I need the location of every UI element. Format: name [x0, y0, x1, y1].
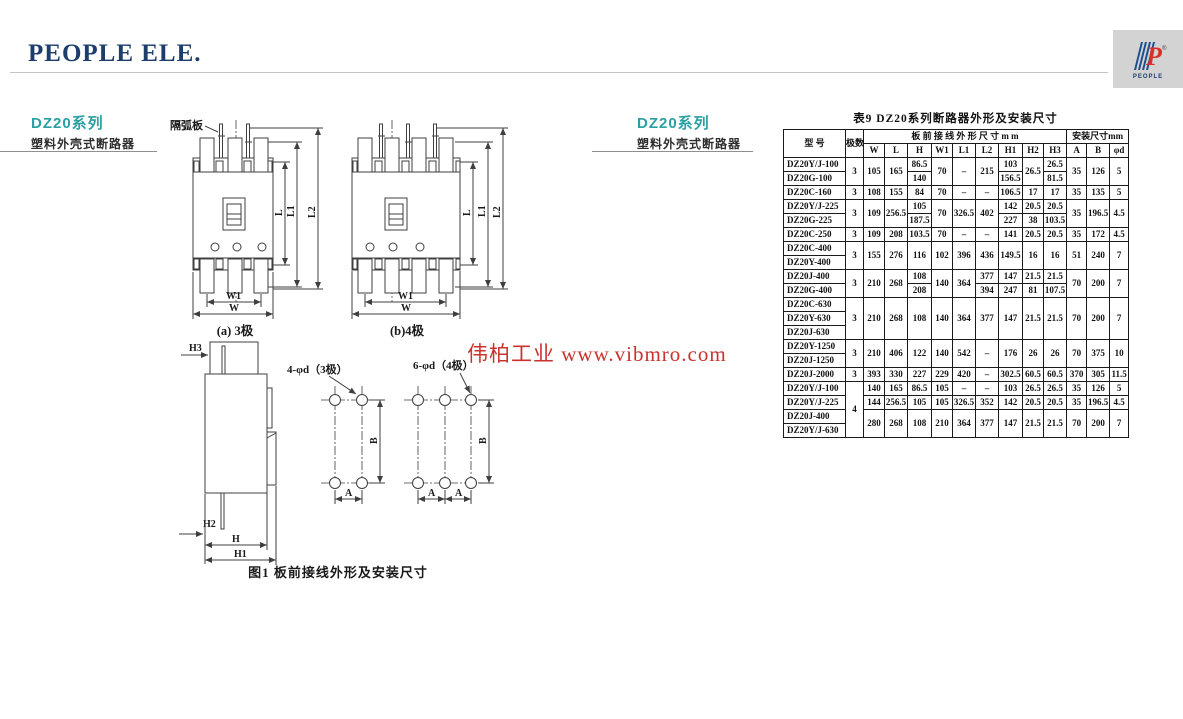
value-cell: 106.5	[999, 186, 1023, 200]
value-cell: 103.5	[1044, 214, 1067, 228]
table-row: DZ20Y/J-2253109256.510570326.540214220.5…	[784, 200, 1129, 214]
value-cell: 108	[908, 298, 932, 340]
value-cell: 10	[1110, 340, 1129, 368]
model-cell: DZ20C-400	[784, 242, 846, 256]
value-cell: 26.5	[1044, 382, 1067, 396]
value-cell: 210	[864, 340, 885, 368]
dimension-table-section: 表9 DZ20系列断路器外形及安装尺寸 型 号 极数 板 前 接 线 外 形 尺…	[783, 110, 1128, 438]
value-cell: –	[953, 228, 976, 242]
value-cell: 26	[1023, 340, 1044, 368]
value-cell: 377	[976, 298, 999, 340]
dim-label-B: B	[369, 437, 380, 444]
mounting-hole	[416, 243, 424, 251]
value-cell: 140	[932, 340, 953, 368]
value-cell: 7	[1110, 298, 1129, 340]
value-cell: 122	[908, 340, 932, 368]
value-cell: 393	[864, 368, 885, 382]
value-cell: 172	[1087, 228, 1110, 242]
model-cell: DZ20G-225	[784, 214, 846, 228]
table-row: DZ20C-630321026810814036437714721.521.57…	[784, 298, 1129, 312]
model-cell: DZ20C-250	[784, 228, 846, 242]
breaker-side-body	[205, 374, 267, 493]
col-header: L2	[976, 144, 999, 158]
value-cell: 302.5	[999, 368, 1023, 382]
value-cell: 17	[1023, 186, 1044, 200]
value-cell: 70	[932, 228, 953, 242]
value-cell: 116	[908, 242, 932, 270]
value-cell: 140	[864, 382, 885, 396]
model-cell: DZ20J-2000	[784, 368, 846, 382]
hole-pattern-4pole-label: 6-φd（4极）	[413, 358, 474, 372]
value-cell: 5	[1110, 382, 1129, 396]
value-cell: 3	[846, 340, 864, 368]
value-cell: 70	[1067, 270, 1087, 298]
col-header: B	[1087, 144, 1110, 158]
value-cell: 126	[1087, 158, 1110, 186]
value-cell: 35	[1067, 158, 1087, 186]
value-cell: 141	[999, 228, 1023, 242]
value-cell: 84	[908, 186, 932, 200]
value-cell: 227	[908, 368, 932, 382]
fixing-hole	[330, 395, 341, 406]
mounting-bracket	[267, 432, 276, 485]
value-cell: 35	[1067, 396, 1087, 410]
value-cell: 215	[976, 158, 999, 186]
mounting-hole-patterns-drawing: 4-φd（3极） B A 6-φd（4极） B	[285, 358, 500, 510]
value-cell: 86.5	[908, 382, 932, 396]
value-cell: 3	[846, 270, 864, 298]
value-cell: 176	[999, 340, 1023, 368]
value-cell: 3	[846, 158, 864, 186]
col-header: W	[864, 144, 885, 158]
value-cell: 105	[932, 396, 953, 410]
col-header: H3	[1044, 144, 1067, 158]
table-header-row-1: 型 号 极数 板 前 接 线 外 形 尺 寸 m m 安装尺寸mm	[784, 130, 1129, 144]
model-cell: DZ20Y/J-225	[784, 396, 846, 410]
dim-label-L2: L2	[492, 206, 503, 218]
dimension-table-body: DZ20Y/J-100310516586.570–21510326.526.53…	[784, 158, 1129, 438]
value-cell: 7	[1110, 242, 1129, 270]
terminal-lug	[228, 138, 242, 172]
value-cell: 165	[885, 382, 908, 396]
value-cell: 105	[932, 382, 953, 396]
brand-logotype: PEOPLE ELE.	[28, 40, 202, 68]
value-cell: –	[976, 228, 999, 242]
value-cell: 102	[932, 242, 953, 270]
dim-label-L: L	[274, 209, 285, 216]
table-row: DZ20J-40028026810821036437714721.521.570…	[784, 410, 1129, 424]
value-cell: 256.5	[885, 200, 908, 228]
value-cell: 108	[864, 186, 885, 200]
table-row: DZ20J-20003393330227229420–302.560.560.5…	[784, 368, 1129, 382]
value-cell: 396	[953, 242, 976, 270]
value-cell: 20.5	[1044, 396, 1067, 410]
value-cell: 147	[999, 410, 1023, 438]
value-cell: 35	[1067, 186, 1087, 200]
value-cell: 21.5	[1023, 298, 1044, 340]
value-cell: 51	[1067, 242, 1087, 270]
value-cell: 268	[885, 410, 908, 438]
value-cell: 109	[864, 228, 885, 242]
value-cell: 147	[999, 270, 1023, 284]
col-header: φd	[1110, 144, 1129, 158]
col-header: H	[908, 144, 932, 158]
value-cell: 86.5	[908, 158, 932, 172]
value-cell: 227	[999, 214, 1023, 228]
value-cell: 247	[999, 284, 1023, 298]
value-cell: 70	[932, 200, 953, 228]
dim-label-H1: H1	[234, 549, 247, 560]
logo-word: PEOPLE	[1113, 74, 1183, 80]
value-cell: 420	[953, 368, 976, 382]
company-logo: P ® PEOPLE	[1113, 30, 1183, 88]
value-cell: 103.5	[908, 228, 932, 242]
col-header-model: 型 号	[784, 130, 846, 158]
dim-label-L1: L1	[286, 205, 297, 217]
value-cell: 370	[1067, 368, 1087, 382]
value-cell: 406	[885, 340, 908, 368]
company-logo-icon: P ®	[1132, 38, 1168, 74]
value-cell: 26.5	[1044, 158, 1067, 172]
front-view-3pole-drawing: 隔弧板 L L1	[106, 116, 328, 326]
model-cell: DZ20C-160	[784, 186, 846, 200]
value-cell: 26.5	[1023, 382, 1044, 396]
value-cell: 196.5	[1087, 396, 1110, 410]
value-cell: 16	[1023, 242, 1044, 270]
value-cell: 70	[1067, 340, 1087, 368]
value-cell: 26.5	[1023, 158, 1044, 186]
value-cell: 108	[908, 270, 932, 284]
model-cell: DZ20C-630	[784, 298, 846, 312]
dim-label-W1: W1	[226, 291, 241, 302]
fixing-hole	[440, 395, 451, 406]
value-cell: 165	[885, 158, 908, 186]
col-group-install-dims: 安装尺寸mm	[1067, 130, 1129, 144]
model-cell: DZ20Y/J-100	[784, 382, 846, 396]
fixing-hole	[330, 478, 341, 489]
value-cell: 21.5	[1023, 410, 1044, 438]
dim-label-A: A	[428, 488, 436, 499]
value-cell: 105	[908, 396, 932, 410]
value-cell: 4.5	[1110, 396, 1129, 410]
dim-label-B: B	[478, 437, 489, 444]
mounting-hole	[258, 243, 266, 251]
model-cell: DZ20G-400	[784, 284, 846, 298]
fixing-hole	[357, 395, 368, 406]
terminal-lug	[228, 259, 242, 293]
value-cell: 326.5	[953, 200, 976, 228]
value-cell: 21.5	[1044, 410, 1067, 438]
value-cell: 81	[1023, 284, 1044, 298]
value-cell: 35	[1067, 228, 1087, 242]
mounting-hole	[366, 243, 374, 251]
dim-label-L1: L1	[477, 205, 488, 217]
dim-label-W1: W1	[398, 291, 413, 302]
figure-caption: 图1 板前接线外形及安装尺寸	[158, 562, 518, 581]
value-cell: 200	[1087, 410, 1110, 438]
value-cell: 200	[1087, 298, 1110, 340]
dim-label-W: W	[401, 303, 411, 314]
value-cell: 229	[932, 368, 953, 382]
terminal-lug	[254, 138, 268, 172]
col-header: A	[1067, 144, 1087, 158]
dim-label-H3: H3	[189, 343, 202, 354]
value-cell: 542	[953, 340, 976, 368]
value-cell: 144	[864, 396, 885, 410]
value-cell: 394	[976, 284, 999, 298]
value-cell: 149.5	[999, 242, 1023, 270]
fixing-hole	[466, 395, 477, 406]
fixing-hole	[357, 478, 368, 489]
value-cell: 81.5	[1044, 172, 1067, 186]
value-cell: 105	[908, 200, 932, 214]
model-cell: DZ20J-400	[784, 270, 846, 284]
value-cell: 330	[885, 368, 908, 382]
mounting-hole	[211, 243, 219, 251]
arc-plate-label: 隔弧板	[170, 118, 204, 132]
terminal-lug	[200, 259, 214, 293]
value-cell: 155	[885, 186, 908, 200]
value-cell: 70	[932, 158, 953, 186]
value-cell: 256.5	[885, 396, 908, 410]
value-cell: 326.5	[953, 396, 976, 410]
model-cell: DZ20Y/J-100	[784, 158, 846, 172]
value-cell: 21.5	[1023, 270, 1044, 284]
fixing-hole	[413, 395, 424, 406]
terminal-lug	[200, 138, 214, 172]
table-row: DZ20C-2503109208103.570––14120.520.53517…	[784, 228, 1129, 242]
value-cell: 187.5	[908, 214, 932, 228]
table-row: DZ20Y/J-225144256.5105105326.535214220.5…	[784, 396, 1129, 410]
value-cell: 70	[1067, 410, 1087, 438]
terminal-lug	[385, 259, 399, 293]
value-cell: 3	[846, 368, 864, 382]
section-divider-middle	[592, 151, 753, 152]
col-header: H1	[999, 144, 1023, 158]
col-header: L1	[953, 144, 976, 158]
registered-mark: ®	[1162, 45, 1167, 52]
value-cell: –	[976, 340, 999, 368]
value-cell: 4.5	[1110, 200, 1129, 228]
col-header: W1	[932, 144, 953, 158]
terminal-lug	[412, 259, 426, 293]
value-cell: 364	[953, 410, 976, 438]
value-cell: 377	[976, 270, 999, 284]
terminal-lug	[385, 138, 399, 172]
value-cell: 103	[999, 382, 1023, 396]
value-cell: 20.5	[1044, 228, 1067, 242]
value-cell: 26	[1044, 340, 1067, 368]
value-cell: 142	[999, 396, 1023, 410]
value-cell: 210	[932, 410, 953, 438]
table-row: DZ20Y-12503210406122140542–1762626703751…	[784, 340, 1129, 354]
value-cell: 5	[1110, 186, 1129, 200]
dim-label-A: A	[345, 488, 353, 499]
front-view-4pole-drawing: L L1 L2 W1 W	[340, 116, 512, 326]
value-cell: 140	[932, 270, 953, 298]
terminal-lug	[254, 259, 268, 293]
value-cell: 3	[846, 242, 864, 270]
value-cell: 11.5	[1110, 368, 1129, 382]
fixing-hole	[413, 478, 424, 489]
value-cell: 200	[1087, 270, 1110, 298]
value-cell: 402	[976, 200, 999, 228]
side-view-drawing: H3 H2 H H1	[175, 338, 287, 570]
value-cell: 240	[1087, 242, 1110, 270]
value-cell: 17	[1044, 186, 1067, 200]
terminal-cover	[210, 342, 258, 374]
caption-3pole: (a) 3极	[180, 320, 290, 339]
dim-label-H: H	[232, 534, 240, 545]
value-cell: 156.5	[999, 172, 1023, 186]
value-cell: 20.5	[1044, 200, 1067, 214]
terminal-lug	[358, 259, 372, 293]
value-cell: 305	[1087, 368, 1110, 382]
fixing-hole	[466, 478, 477, 489]
value-cell: 105	[864, 158, 885, 186]
value-cell: 140	[932, 298, 953, 340]
dim-label-L: L	[462, 209, 473, 216]
value-cell: 3	[846, 228, 864, 242]
value-cell: 436	[976, 242, 999, 270]
catalog-page: PEOPLE ELE. P ® PEOPLE DZ20系列 塑料外壳式断路器 D…	[0, 0, 1183, 719]
value-cell: 20.5	[1023, 228, 1044, 242]
terminal-lug	[439, 259, 453, 293]
dim-label-A: A	[455, 488, 463, 499]
value-cell: –	[953, 158, 976, 186]
col-header-poles: 极数	[846, 130, 864, 158]
table-row: DZ20C-4003155276116102396436149.51616512…	[784, 242, 1129, 256]
value-cell: –	[976, 368, 999, 382]
value-cell: 108	[908, 410, 932, 438]
value-cell: 3	[846, 298, 864, 340]
caption-4pole: (b)4极	[352, 320, 462, 339]
model-cell: DZ20Y-630	[784, 312, 846, 326]
value-cell: 4.5	[1110, 228, 1129, 242]
value-cell: 20.5	[1023, 396, 1044, 410]
model-cell: DZ20J-630	[784, 326, 846, 340]
value-cell: 280	[864, 410, 885, 438]
value-cell: 268	[885, 270, 908, 298]
value-cell: 140	[908, 172, 932, 186]
value-cell: 109	[864, 200, 885, 228]
value-cell: 210	[864, 298, 885, 340]
col-header: H2	[1023, 144, 1044, 158]
value-cell: 126	[1087, 382, 1110, 396]
value-cell: 196.5	[1087, 200, 1110, 228]
model-cell: DZ20J-400	[784, 410, 846, 424]
dim-label-W: W	[229, 303, 239, 314]
value-cell: –	[976, 382, 999, 396]
model-cell: DZ20G-100	[784, 172, 846, 186]
value-cell: 70	[932, 186, 953, 200]
value-cell: 147	[999, 298, 1023, 340]
table-row: DZ20Y/J-100310516586.570–21510326.526.53…	[784, 158, 1129, 172]
value-cell: 135	[1087, 186, 1110, 200]
model-cell: DZ20Y-400	[784, 256, 846, 270]
table-row: DZ20J-400321026810814036437714721.521.57…	[784, 270, 1129, 284]
value-cell: –	[976, 186, 999, 200]
value-cell: –	[953, 382, 976, 396]
value-cell: 208	[908, 284, 932, 298]
col-header: L	[885, 144, 908, 158]
value-cell: 107.5	[1044, 284, 1067, 298]
value-cell: 60.5	[1023, 368, 1044, 382]
value-cell: 377	[976, 410, 999, 438]
mounting-hole	[389, 243, 397, 251]
watermark: 伟柏工业 www.vibmro.com	[467, 338, 727, 368]
value-cell: 60.5	[1044, 368, 1067, 382]
value-cell: 35	[1067, 200, 1087, 228]
value-cell: 21.5	[1044, 298, 1067, 340]
terminal-lug	[358, 138, 372, 172]
value-cell: 21.5	[1044, 270, 1067, 284]
value-cell: 38	[1023, 214, 1044, 228]
mounting-hole	[233, 243, 241, 251]
value-cell: 35	[1067, 382, 1087, 396]
model-cell: DZ20Y-1250	[784, 340, 846, 354]
value-cell: 142	[999, 200, 1023, 214]
terminal-lug	[439, 138, 453, 172]
table-row: DZ20Y/J-100414016586.5105––10326.526.535…	[784, 382, 1129, 396]
value-cell: 276	[885, 242, 908, 270]
value-cell: 352	[976, 396, 999, 410]
value-cell: 3	[846, 200, 864, 228]
value-cell: –	[953, 186, 976, 200]
model-cell: DZ20Y/J-225	[784, 200, 846, 214]
value-cell: 103	[999, 158, 1023, 172]
dimension-table: 型 号 极数 板 前 接 线 外 形 尺 寸 m m 安装尺寸mm W L H …	[783, 129, 1129, 438]
model-cell: DZ20Y/J-630	[784, 424, 846, 438]
value-cell: 155	[864, 242, 885, 270]
value-cell: 375	[1087, 340, 1110, 368]
value-cell: 4	[846, 382, 864, 438]
table-title: 表9 DZ20系列断路器外形及安装尺寸	[783, 110, 1128, 126]
value-cell: 5	[1110, 158, 1129, 186]
value-cell: 208	[885, 228, 908, 242]
col-group-front-wiring-dims: 板 前 接 线 外 形 尺 寸 m m	[864, 130, 1067, 144]
value-cell: 3	[846, 186, 864, 200]
value-cell: 268	[885, 298, 908, 340]
table-row: DZ20C-16031081558470––106.51717351355	[784, 186, 1129, 200]
value-cell: 20.5	[1023, 200, 1044, 214]
hole-pattern-3pole-label: 4-φd（3极）	[287, 362, 348, 376]
fixing-hole	[440, 478, 451, 489]
value-cell: 7	[1110, 270, 1129, 298]
value-cell: 210	[864, 270, 885, 298]
dim-label-L2: L2	[307, 206, 318, 218]
value-cell: 16	[1044, 242, 1067, 270]
value-cell: 70	[1067, 298, 1087, 340]
value-cell: 364	[953, 298, 976, 340]
value-cell: 7	[1110, 410, 1129, 438]
svg-text:P: P	[1145, 42, 1163, 71]
value-cell: 364	[953, 270, 976, 298]
model-cell: DZ20J-1250	[784, 354, 846, 368]
header-divider	[10, 72, 1108, 73]
terminal-lug	[412, 138, 426, 172]
